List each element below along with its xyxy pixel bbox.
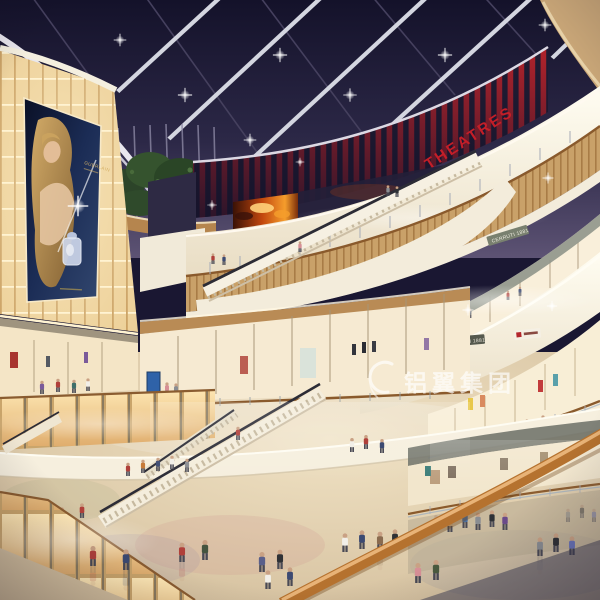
vignette-overlay (0, 0, 600, 600)
mall-atrium-rendering: THEATRES CERRUTI 1881 GUERLAIN (0, 0, 600, 600)
mall-scene: THEATRES CERRUTI 1881 GUERLAIN (0, 0, 600, 600)
